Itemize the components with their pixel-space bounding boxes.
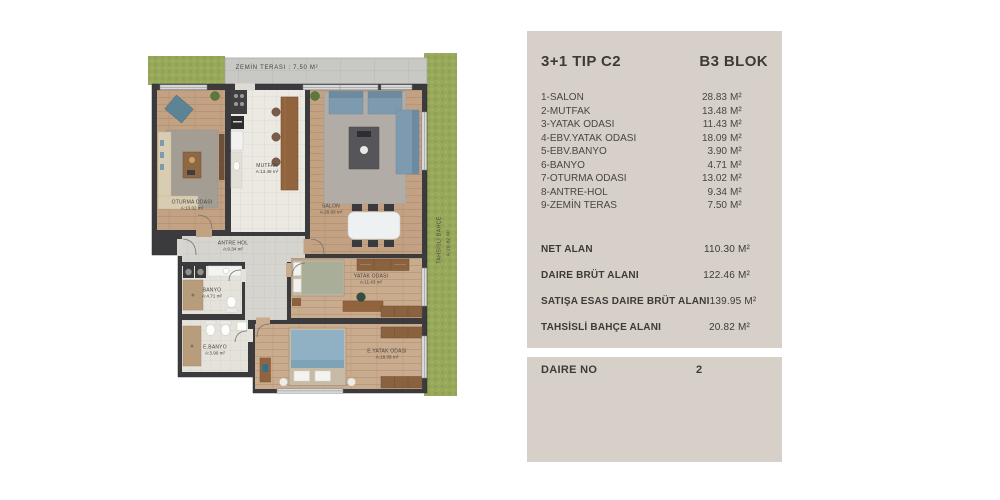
tv-unit bbox=[219, 134, 225, 180]
summary-value: 110.30 bbox=[699, 243, 735, 256]
room-name: 2-MUTFAK bbox=[541, 105, 693, 119]
room-area-value: 7.50 bbox=[693, 199, 727, 213]
panel-header: 3+1 TIP C2 B3 BLOK bbox=[541, 53, 768, 71]
plan-type-title: 3+1 TIP C2 bbox=[541, 53, 621, 71]
room-area-unit: M² bbox=[727, 132, 746, 146]
bar-counter bbox=[281, 97, 298, 190]
summary-unit: M² bbox=[741, 295, 756, 308]
room-area-value: 11.43 bbox=[693, 118, 727, 132]
room-name: 5-EBV.BANYO bbox=[541, 145, 693, 159]
bidet bbox=[221, 325, 230, 336]
room-list-item: 6-BANYO4.71M² bbox=[541, 159, 746, 173]
floor-plan-drawing: ZEMİN TERASI : 7,50 M² bbox=[145, 48, 460, 400]
room-area-unit: M² bbox=[727, 105, 746, 119]
chair bbox=[368, 240, 378, 247]
room-area-value: 13.02 bbox=[693, 172, 727, 186]
room-area-unit: M² bbox=[727, 186, 746, 200]
wardrobe bbox=[381, 306, 422, 317]
floor-plan: ZEMİN TERASI : 7,50 M² bbox=[145, 48, 460, 400]
pillow bbox=[294, 371, 310, 381]
summary-item: DAIRE BRÜT ALANI122.46M² bbox=[541, 269, 754, 282]
dining-table bbox=[348, 212, 400, 239]
room-name: 7-OTURMA ODASI bbox=[541, 172, 693, 186]
room-list: 1-SALON28.83M² 2-MUTFAK13.48M² 3-YATAK O… bbox=[541, 91, 768, 213]
nightstand bbox=[280, 378, 288, 386]
summary-list: NET ALAN110.30M² DAIRE BRÜT ALANI122.46M… bbox=[541, 243, 768, 334]
summary-label: NET ALAN bbox=[541, 243, 699, 256]
summary-item: NET ALAN110.30M² bbox=[541, 243, 754, 256]
room-area-unit: M² bbox=[727, 172, 746, 186]
room-area-unit: M² bbox=[727, 199, 746, 213]
sofa bbox=[158, 132, 171, 198]
brochure-page: ZEMİN TERASI : 7,50 M² bbox=[0, 0, 1000, 500]
room-area-eyatak: A:18.09 m² bbox=[376, 355, 399, 360]
block-title: B3 BLOK bbox=[699, 53, 768, 71]
stool bbox=[272, 108, 280, 116]
summary-value: 20.82 bbox=[699, 321, 735, 334]
room-name: 4-EBV.YATAK ODASI bbox=[541, 132, 693, 146]
room-area-antre: A:9.34 m² bbox=[223, 247, 243, 252]
summary-item: TAHSİSLİ BAHÇE ALANI20.82M² bbox=[541, 321, 754, 334]
desk bbox=[343, 301, 383, 312]
fridge bbox=[231, 131, 243, 150]
room-area-value: 13.48 bbox=[693, 105, 727, 119]
pillow bbox=[294, 279, 302, 292]
room-name: 3-YATAK ODASI bbox=[541, 118, 693, 132]
sink bbox=[233, 162, 239, 171]
sink bbox=[237, 322, 247, 331]
plant-icon bbox=[311, 92, 320, 101]
room-area-value: 4.71 bbox=[693, 159, 727, 173]
summary-label: SATIŞA ESAS DAIRE BRÜT ALANI bbox=[541, 295, 710, 308]
room-area-value: 3.90 bbox=[693, 145, 727, 159]
summary-unit: M² bbox=[735, 321, 754, 334]
room-area-unit: M² bbox=[727, 91, 746, 105]
chair bbox=[384, 240, 394, 247]
unit-number-panel: DAIRE NO 2 bbox=[527, 357, 782, 462]
terrace-label: ZEMİN TERASI : 7,50 M² bbox=[236, 64, 319, 71]
wardrobe bbox=[381, 327, 422, 338]
unit-number-row: DAIRE NO 2 bbox=[541, 364, 768, 376]
room-area-mutfak: A:13.48 m² bbox=[256, 169, 279, 174]
room-list-item: 2-MUTFAK13.48M² bbox=[541, 105, 746, 119]
summary-label: TAHSİSLİ BAHÇE ALANI bbox=[541, 321, 699, 334]
info-panel: 3+1 TIP C2 B3 BLOK 1-SALON28.83M² 2-MUTF… bbox=[527, 31, 782, 348]
room-list-item: 9-ZEMİN TERAS7.50M² bbox=[541, 199, 746, 213]
desk-chair bbox=[357, 293, 366, 302]
room-list-item: 1-SALON28.83M² bbox=[541, 91, 746, 105]
room-area-value: 28.83 bbox=[693, 91, 727, 105]
room-name: 6-BANYO bbox=[541, 159, 693, 173]
room-list-item: 3-YATAK ODASI11.43M² bbox=[541, 118, 746, 132]
room-name: 8-ANTRE-HOL bbox=[541, 186, 693, 200]
plant-icon bbox=[211, 92, 220, 101]
summary-label: DAIRE BRÜT ALANI bbox=[541, 269, 699, 282]
room-name: 1-SALON bbox=[541, 91, 693, 105]
summary-item: SATIŞA ESAS DAIRE BRÜT ALANI139.95M² bbox=[541, 295, 754, 308]
chair bbox=[368, 204, 378, 211]
garden-area-label: A:20.82 M² bbox=[446, 230, 452, 257]
nightstand bbox=[292, 298, 301, 306]
room-list-item: 5-EBV.BANYO3.90M² bbox=[541, 145, 746, 159]
room-area-yatak: A:11.43 m² bbox=[360, 280, 383, 285]
room-list-item: 4-EBV.YATAK ODASI18.09M² bbox=[541, 132, 746, 146]
wardrobe bbox=[381, 377, 422, 389]
garden-label: TAHSİSLİ BAHÇE bbox=[436, 216, 443, 264]
unit-number-label: DAIRE NO bbox=[541, 364, 696, 376]
summary-unit: M² bbox=[735, 243, 754, 256]
summary-value: 139.95 bbox=[710, 295, 742, 308]
room-name: 9-ZEMİN TERAS bbox=[541, 199, 693, 213]
room-area-unit: M² bbox=[727, 145, 746, 159]
terrace: ZEMİN TERASI : 7,50 M² bbox=[225, 58, 427, 86]
summary-unit: M² bbox=[735, 269, 754, 282]
room-area-banyo: A:4.71 m² bbox=[202, 294, 222, 299]
summary-value: 122.46 bbox=[699, 269, 735, 282]
stove bbox=[231, 90, 247, 114]
room-area-ebanyo: A:3.90 m² bbox=[205, 351, 225, 356]
chair bbox=[352, 240, 362, 247]
room-area-unit: M² bbox=[727, 118, 746, 132]
stool bbox=[272, 133, 280, 141]
room-list-item: 7-OTURMA ODASI13.02M² bbox=[541, 172, 746, 186]
nightstand bbox=[348, 378, 356, 386]
room-list-item: 8-ANTRE-HOL9.34M² bbox=[541, 186, 746, 200]
toilet bbox=[227, 297, 236, 308]
room-area-oturma: A:13.02 m² bbox=[181, 206, 204, 211]
room-area-unit: M² bbox=[727, 159, 746, 173]
room-area-value: 9.34 bbox=[693, 186, 727, 200]
toilet bbox=[206, 325, 215, 336]
room-area-salon: A:28.83 m² bbox=[320, 210, 343, 215]
room-area-value: 18.09 bbox=[693, 132, 727, 146]
chair bbox=[352, 204, 362, 211]
chair bbox=[384, 204, 394, 211]
unit-number-value: 2 bbox=[696, 364, 702, 376]
pillow bbox=[315, 371, 331, 381]
